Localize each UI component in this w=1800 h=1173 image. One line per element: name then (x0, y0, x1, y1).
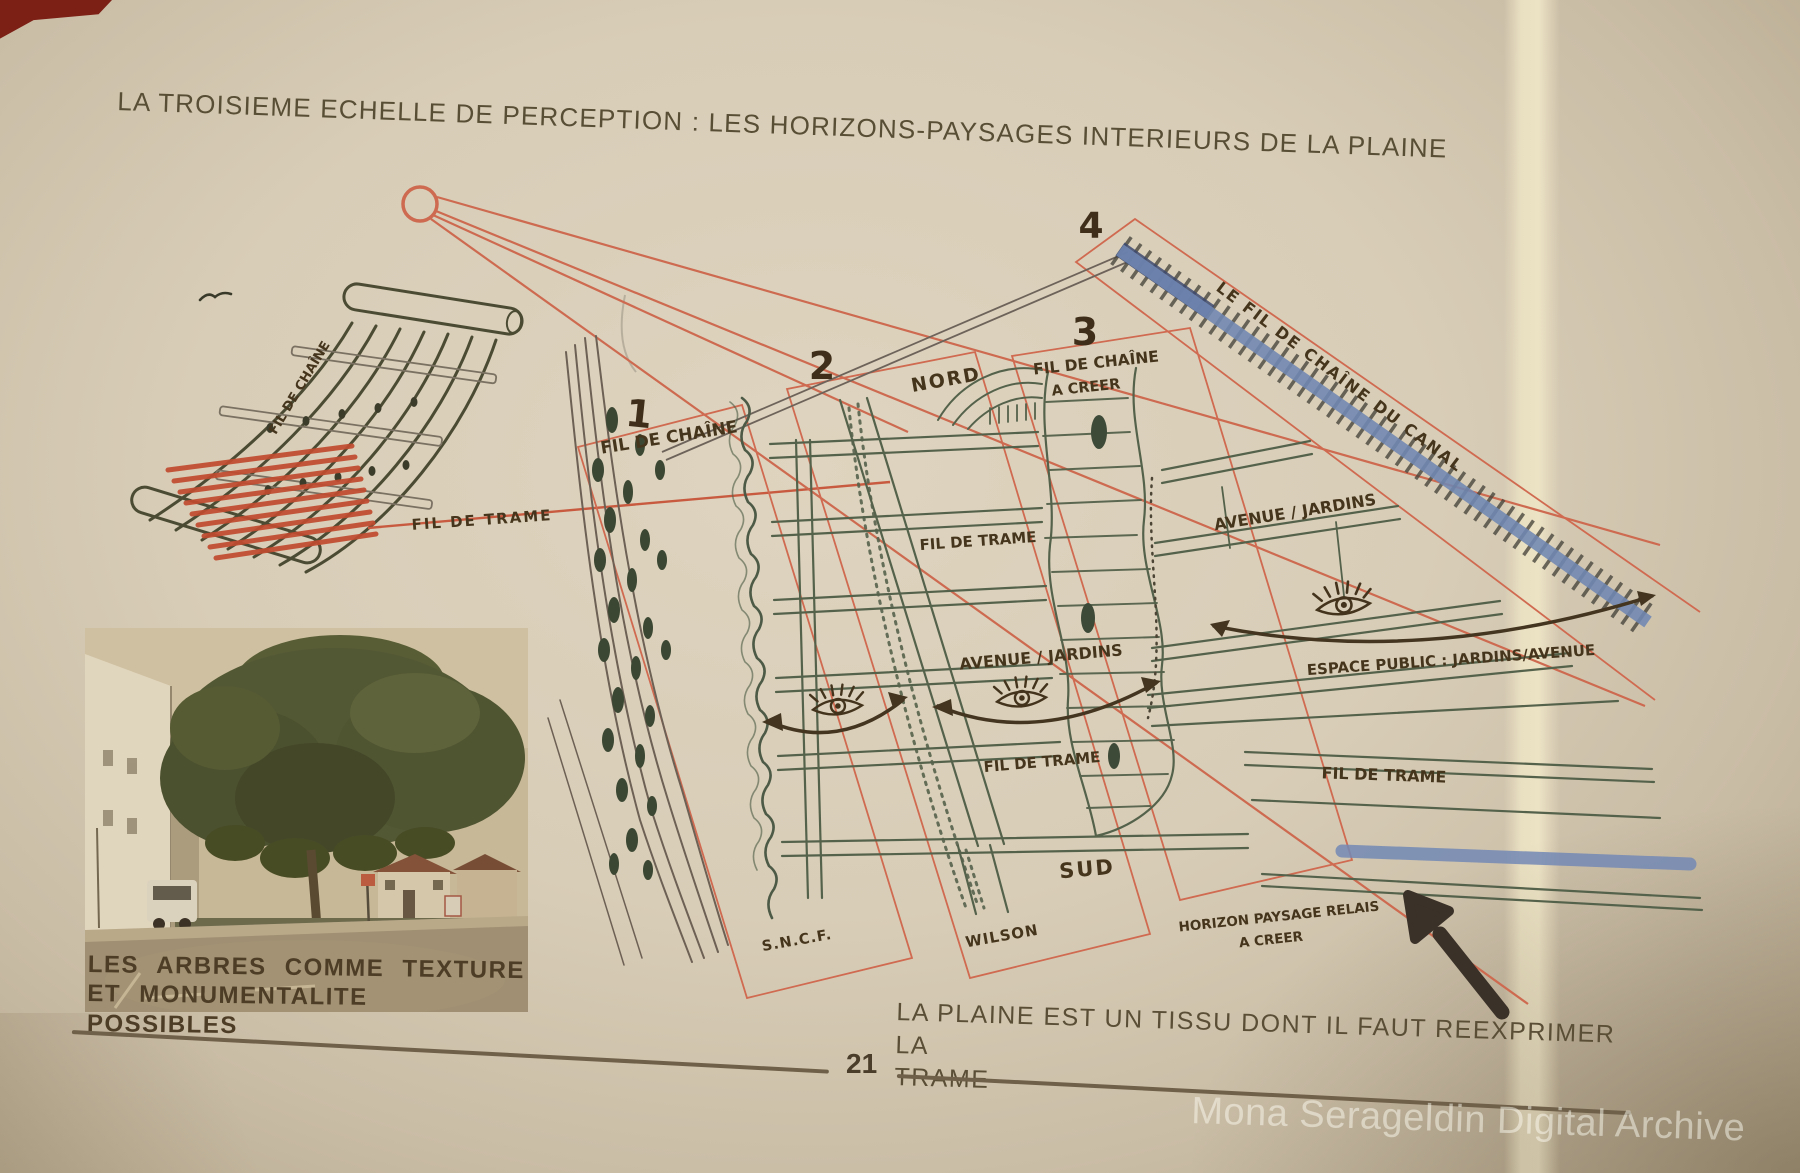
blue-band-south (1342, 851, 1690, 864)
big-arrow-icon (1408, 895, 1502, 1012)
band-2-number: 2 (809, 344, 835, 388)
perception-rays (403, 187, 1660, 1004)
viewpoint-circle (403, 187, 437, 221)
canal-water (1120, 250, 1648, 622)
band-4-number: 4 (1078, 206, 1103, 247)
tree-dots (592, 407, 671, 880)
bird-mark (200, 293, 231, 300)
band-3-outline (1012, 328, 1352, 900)
band-3-number: 3 (1072, 310, 1098, 354)
photo-caption: LES ARBRES COMME TEXTURE ET MONUMENTALIT… (87, 950, 528, 1044)
south-street (782, 834, 1248, 856)
south-label: SUD (1058, 855, 1115, 884)
slide: LES ARBRES COMME TEXTURE ET MONUMENTALIT… (0, 0, 1800, 1173)
arrowhead-icon (932, 699, 953, 716)
page-number: 21 (846, 1048, 877, 1080)
weft-stripes (168, 446, 376, 558)
canal (1120, 249, 1648, 622)
perception-bands (578, 219, 1700, 998)
arrowhead-icon (1637, 591, 1656, 606)
